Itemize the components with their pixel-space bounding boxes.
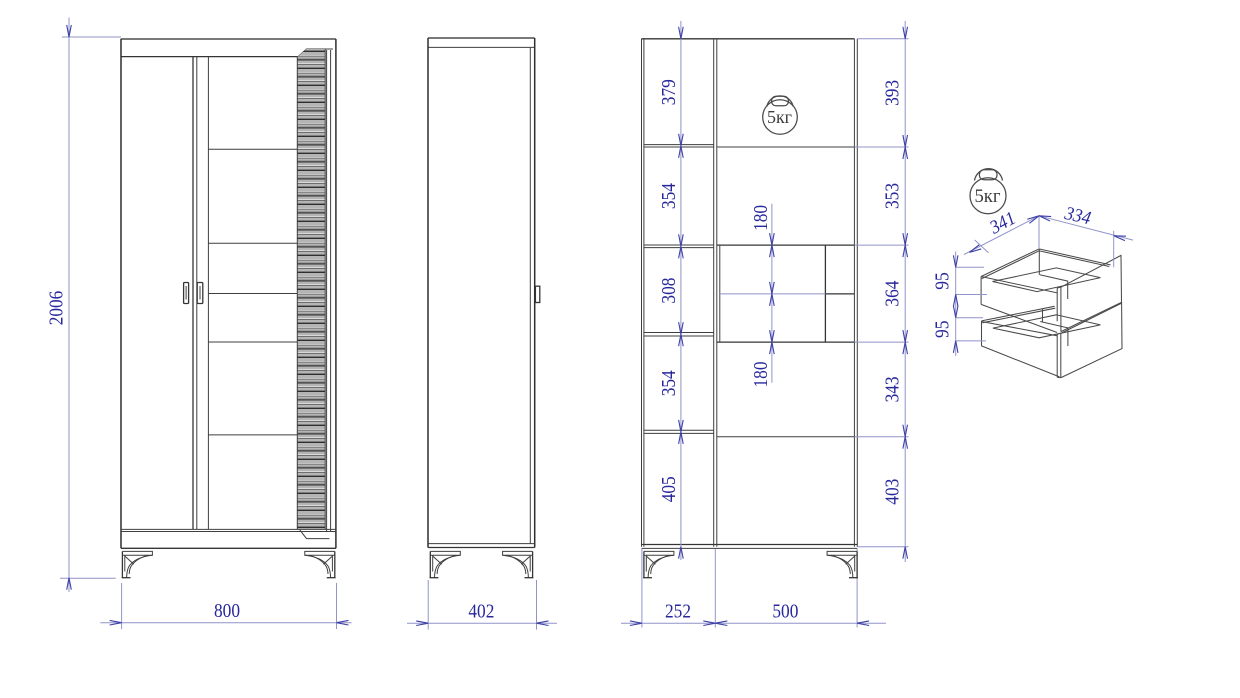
svg-text:95: 95	[932, 321, 954, 339]
svg-text:500: 500	[772, 601, 798, 623]
svg-text:343: 343	[881, 376, 903, 402]
svg-text:402: 402	[468, 600, 494, 622]
svg-text:379: 379	[658, 79, 680, 105]
svg-text:393: 393	[881, 80, 903, 106]
svg-text:308: 308	[658, 278, 680, 304]
svg-text:364: 364	[881, 281, 903, 307]
svg-text:403: 403	[881, 479, 903, 505]
svg-text:353: 353	[881, 183, 903, 209]
svg-text:180: 180	[750, 205, 772, 231]
svg-text:95: 95	[932, 272, 954, 290]
svg-text:5кг: 5кг	[975, 186, 1001, 207]
svg-text:2006: 2006	[45, 291, 67, 326]
svg-text:252: 252	[665, 601, 691, 623]
svg-text:354: 354	[658, 370, 680, 396]
svg-text:354: 354	[658, 183, 680, 209]
svg-text:800: 800	[214, 600, 240, 622]
svg-text:5кг: 5кг	[767, 107, 792, 127]
svg-text:405: 405	[658, 476, 680, 502]
svg-text:180: 180	[750, 362, 772, 388]
